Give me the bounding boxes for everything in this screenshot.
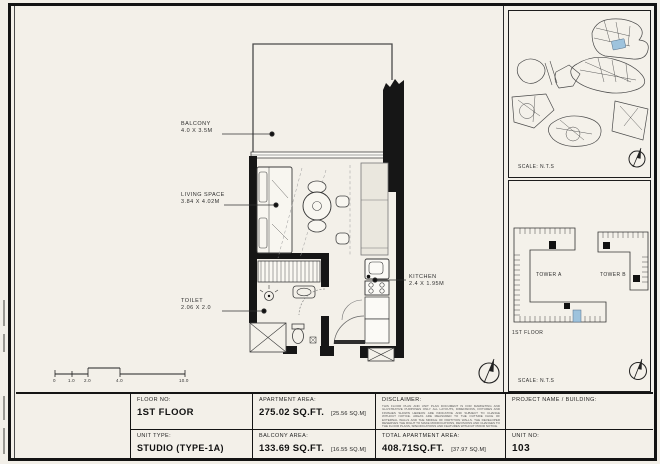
logo-cell <box>16 394 130 459</box>
tower-b-label: TOWER B <box>600 272 626 278</box>
scale-tick: 0 <box>53 378 56 383</box>
balcony-area-cell: BALCONY AREA: 133.69 SQ.FT. [16.55 SQ.M] <box>252 429 375 459</box>
scale-tick: 4.0 <box>116 378 123 383</box>
balcony-area-sqm: [16.55 SQ.M] <box>331 447 366 453</box>
balcony-outline <box>251 44 392 158</box>
key-highlighted-unit <box>573 310 581 322</box>
kitchen-label: KITCHEN 2.4 X 1.95M <box>409 274 444 288</box>
north-arrow-key <box>630 359 647 380</box>
scale-tick: 2.0 <box>84 378 91 383</box>
balcony-label: BALCONY 4.0 X 3.5M <box>181 121 213 135</box>
unit-type-cell: UNIT TYPE: STUDIO (TYPE-1A) <box>130 429 252 459</box>
room-dims: 2.4 X 1.95M <box>409 281 444 288</box>
tower-a-label: TOWER A <box>536 272 562 278</box>
room-name: KITCHEN <box>409 274 444 281</box>
disclaimer-cell: DISCLAIMER: THIS FLOOR PLAN AND UNIT PLA… <box>375 394 505 429</box>
entry-door <box>334 316 365 344</box>
site-scale-note: SCALE: N.T.S <box>518 164 554 170</box>
room-name: TOILET <box>181 298 211 305</box>
balcony-area-label: BALCONY AREA: <box>259 433 375 439</box>
disclaimer-label: DISCLAIMER: <box>382 397 505 403</box>
unit-no-cell: UNIT NO: 103 <box>505 429 653 459</box>
living-space-label: LIVING SPACE 3.84 X 4.02M <box>181 192 225 206</box>
total-area-value: 408.71SQ.FT. <box>382 443 444 454</box>
tower-b-plan <box>598 232 648 290</box>
project-name-cell: PROJECT NAME / BUILDING: <box>505 394 653 429</box>
north-arrow-main <box>479 359 499 383</box>
key-scale-note: SCALE: N.T.S <box>518 378 554 384</box>
bed <box>257 167 292 253</box>
balcony-area-value: 133.69 SQ.FT. <box>259 443 324 454</box>
total-area-label: TOTAL APARTMENT AREA: <box>382 433 505 439</box>
desk-chairs <box>336 196 349 244</box>
project-name-label: PROJECT NAME / BUILDING: <box>512 397 653 403</box>
scale-tick: 1.0 <box>68 378 75 383</box>
apartment-area-label: APARTMENT AREA: <box>259 397 375 403</box>
scale-tick: 10.0 <box>179 378 189 383</box>
scale-bar <box>55 368 185 377</box>
unit-type-value: STUDIO (TYPE-1A) <box>137 443 252 453</box>
apartment-area-cell: APARTMENT AREA: 275.02 SQ.FT. [25.56 SQ.… <box>252 394 375 429</box>
key-floor-label: 1ST FLOOR <box>512 330 543 336</box>
title-block: FLOOR NO: 1ST FLOOR UNIT TYPE: STUDIO (T… <box>16 392 653 459</box>
apartment-area-value: 275.02 SQ.FT. <box>259 407 324 418</box>
total-area-cell: TOTAL APARTMENT AREA: 408.71SQ.FT. [37.9… <box>375 429 505 459</box>
wardrobe <box>258 261 320 282</box>
site-highlighted-unit <box>611 39 626 51</box>
dining-set <box>303 181 331 232</box>
disclaimer-text: THIS FLOOR PLAN AND UNIT PLAN DOCUMENT I… <box>382 405 500 429</box>
toilet-label: TOILET 2.06 X 2.0 <box>181 298 211 312</box>
kitchen-counter <box>361 163 388 255</box>
kitchen-door-arc <box>342 300 362 320</box>
room-dims: 3.84 X 4.02M <box>181 199 225 206</box>
unit-no-label: UNIT NO: <box>512 433 653 439</box>
floor-no-cell: FLOOR NO: 1ST FLOOR <box>130 394 252 429</box>
apartment-area-sqm: [25.56 SQ.M] <box>331 411 366 417</box>
kitchen-fixtures <box>365 259 389 343</box>
floor-no-label: FLOOR NO: <box>137 397 252 403</box>
unit-type-label: UNIT TYPE: <box>137 433 252 439</box>
north-arrow-site <box>629 148 645 167</box>
site-plan-drawing <box>512 19 648 146</box>
room-name: BALCONY <box>181 121 213 128</box>
unit-no-value: 103 <box>512 443 653 454</box>
room-dims: 2.06 X 2.0 <box>181 305 211 312</box>
room-dims: 4.0 X 3.5M <box>181 128 213 135</box>
floor-no-value: 1ST FLOOR <box>137 407 252 418</box>
room-name: LIVING SPACE <box>181 192 225 199</box>
total-area-sqm: [37.97 SQ.M] <box>451 447 486 453</box>
